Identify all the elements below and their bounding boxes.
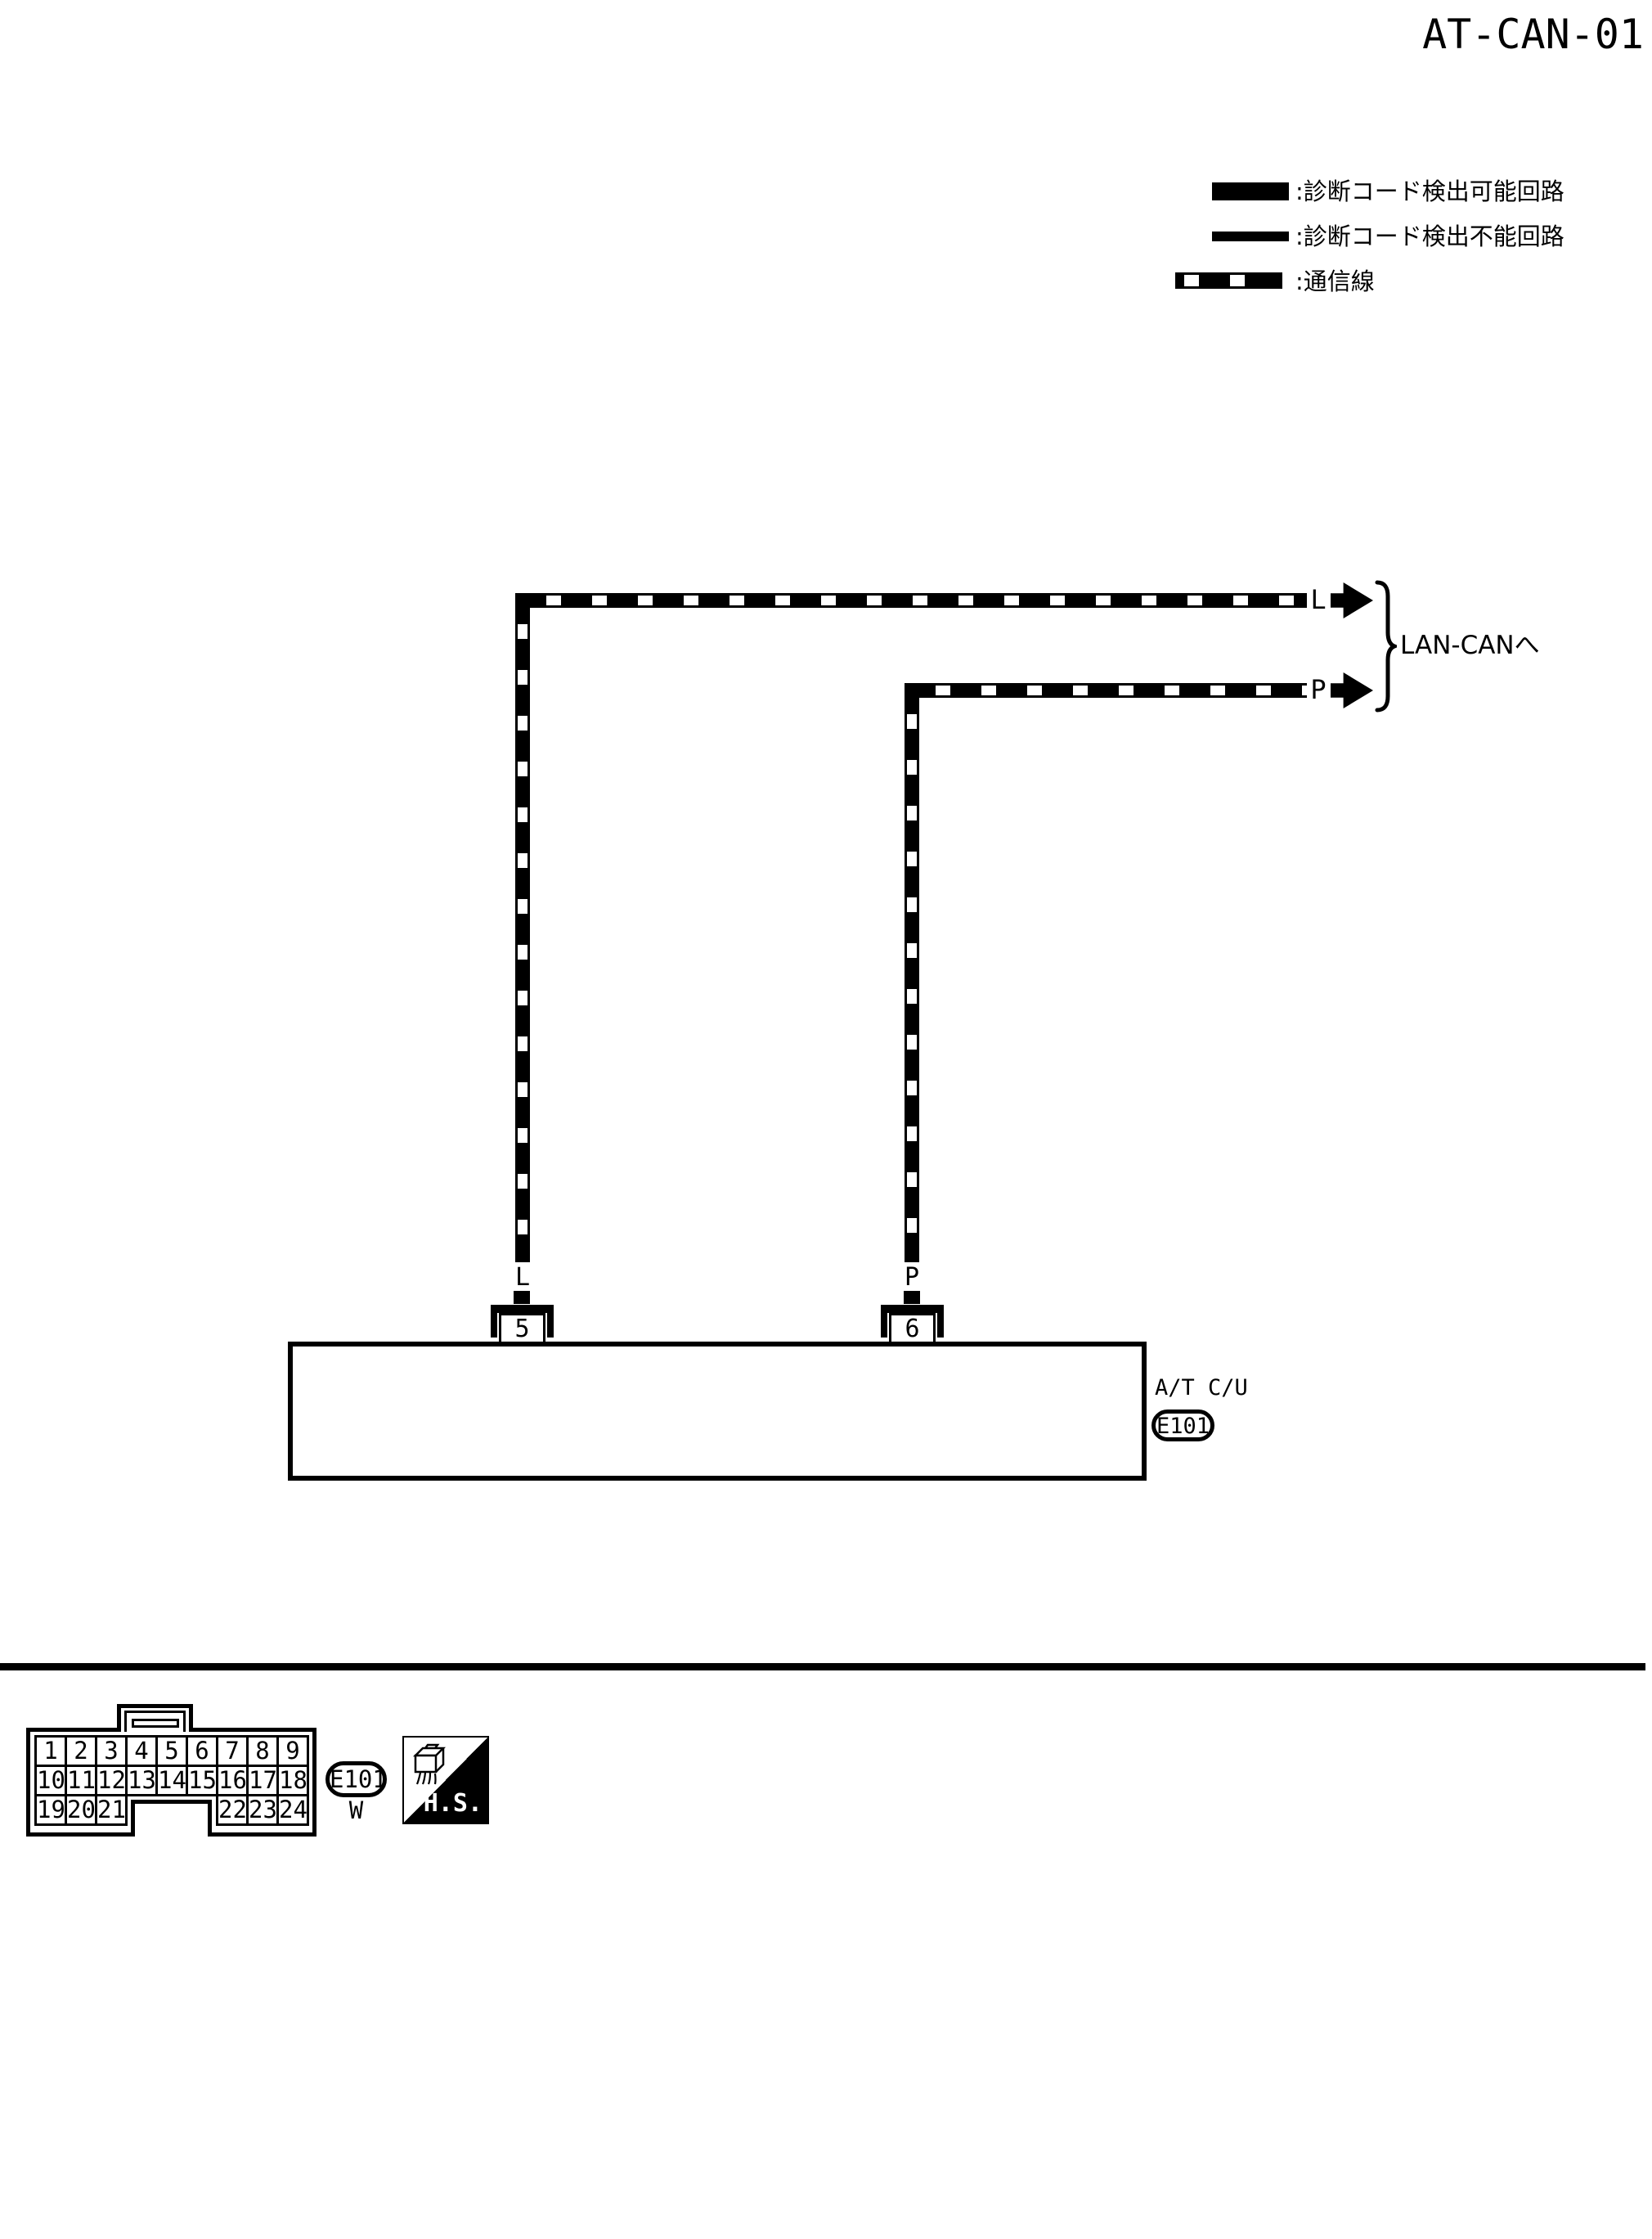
- pin-cell: 9: [276, 1735, 309, 1767]
- pin-cell: 18: [276, 1765, 309, 1796]
- can-h-wire-vertical: [515, 593, 530, 1262]
- legend-label-comm-line: :通信線: [1295, 267, 1375, 296]
- can-l-wire-vertical: [905, 683, 919, 1262]
- destination-label: LAN-CANへ: [1400, 632, 1540, 659]
- connector-icon: [407, 1742, 453, 1790]
- hs-stamp: H.S.: [402, 1736, 489, 1824]
- pin-cell: 8: [246, 1735, 279, 1767]
- can-h-wire-segment: [514, 1291, 530, 1304]
- legend-label-detectable: :診断コード検出可能回路: [1295, 177, 1564, 206]
- pin-cell: 4: [125, 1735, 158, 1767]
- pin-cell: 21: [95, 1794, 128, 1826]
- hs-stamp-label: H.S.: [424, 1792, 483, 1816]
- pin-cell: 16: [216, 1765, 249, 1796]
- pin-cell: 14: [155, 1765, 188, 1796]
- pin-cell: 2: [65, 1735, 97, 1767]
- pin-cell: 13: [125, 1765, 158, 1796]
- pin-cell: 5: [155, 1735, 188, 1767]
- brace-icon: [1374, 580, 1397, 713]
- connector-color-label: W: [325, 1796, 387, 1824]
- atcu-name-label: A/T C/U: [1155, 1376, 1248, 1400]
- legend-swatch-undetectable-line: [1212, 232, 1289, 241]
- legend-label-undetectable: :診断コード検出不能回路: [1295, 222, 1564, 251]
- pin-cell: 17: [246, 1765, 279, 1796]
- pin-cell: 12: [95, 1765, 128, 1796]
- can-l-wire-corner: [905, 683, 919, 698]
- can-h-wire-end-label: L: [1307, 587, 1330, 613]
- legend-swatch-comm-line: [1175, 272, 1282, 289]
- wiring-diagram-page: AT-CAN-01 :診断コード検出可能回路 :診断コード検出不能回路 :通信線…: [0, 0, 1652, 2239]
- pin-cell: 7: [216, 1735, 249, 1767]
- atcu-connector-badge: E101: [1151, 1409, 1214, 1441]
- pin-cell: 19: [34, 1794, 67, 1826]
- page-title: AT-CAN-01: [1422, 13, 1644, 56]
- can-l-wire-segment: [904, 1291, 920, 1304]
- pin-cell: 1: [34, 1735, 67, 1767]
- can-l-wire-end-label: P: [1307, 677, 1330, 703]
- connector-notch: [131, 1800, 212, 1837]
- pin-cell: 20: [65, 1794, 97, 1826]
- can-l-drop-label: P: [898, 1266, 926, 1290]
- pin-cell: 15: [186, 1765, 218, 1796]
- can-h-drop-label: L: [509, 1266, 536, 1290]
- pin5-number-box: 5: [499, 1313, 545, 1344]
- connector-tab-slot: [132, 1719, 179, 1728]
- can-h-wire-horizontal: [515, 593, 1307, 608]
- pin-cell: 10: [34, 1765, 67, 1796]
- pin-cell: 6: [186, 1735, 218, 1767]
- connector-id-badge: E101: [325, 1761, 387, 1797]
- pin-cell: 3: [95, 1735, 128, 1767]
- section-divider: [0, 1663, 1645, 1670]
- pin6-number-box: 6: [889, 1313, 936, 1344]
- legend-swatch-detectable-line: [1212, 182, 1289, 200]
- can-l-arrow-right-icon: [1331, 672, 1373, 708]
- pin-cell: 24: [276, 1794, 309, 1826]
- can-h-arrow-right-icon: [1331, 582, 1373, 618]
- atcu-unit-box: [288, 1342, 1147, 1481]
- pin-cell: 23: [246, 1794, 279, 1826]
- pin-cell: 11: [65, 1765, 97, 1796]
- pin-cell: 22: [216, 1794, 249, 1826]
- can-h-wire-corner: [515, 593, 530, 608]
- can-l-wire-horizontal: [905, 683, 1307, 698]
